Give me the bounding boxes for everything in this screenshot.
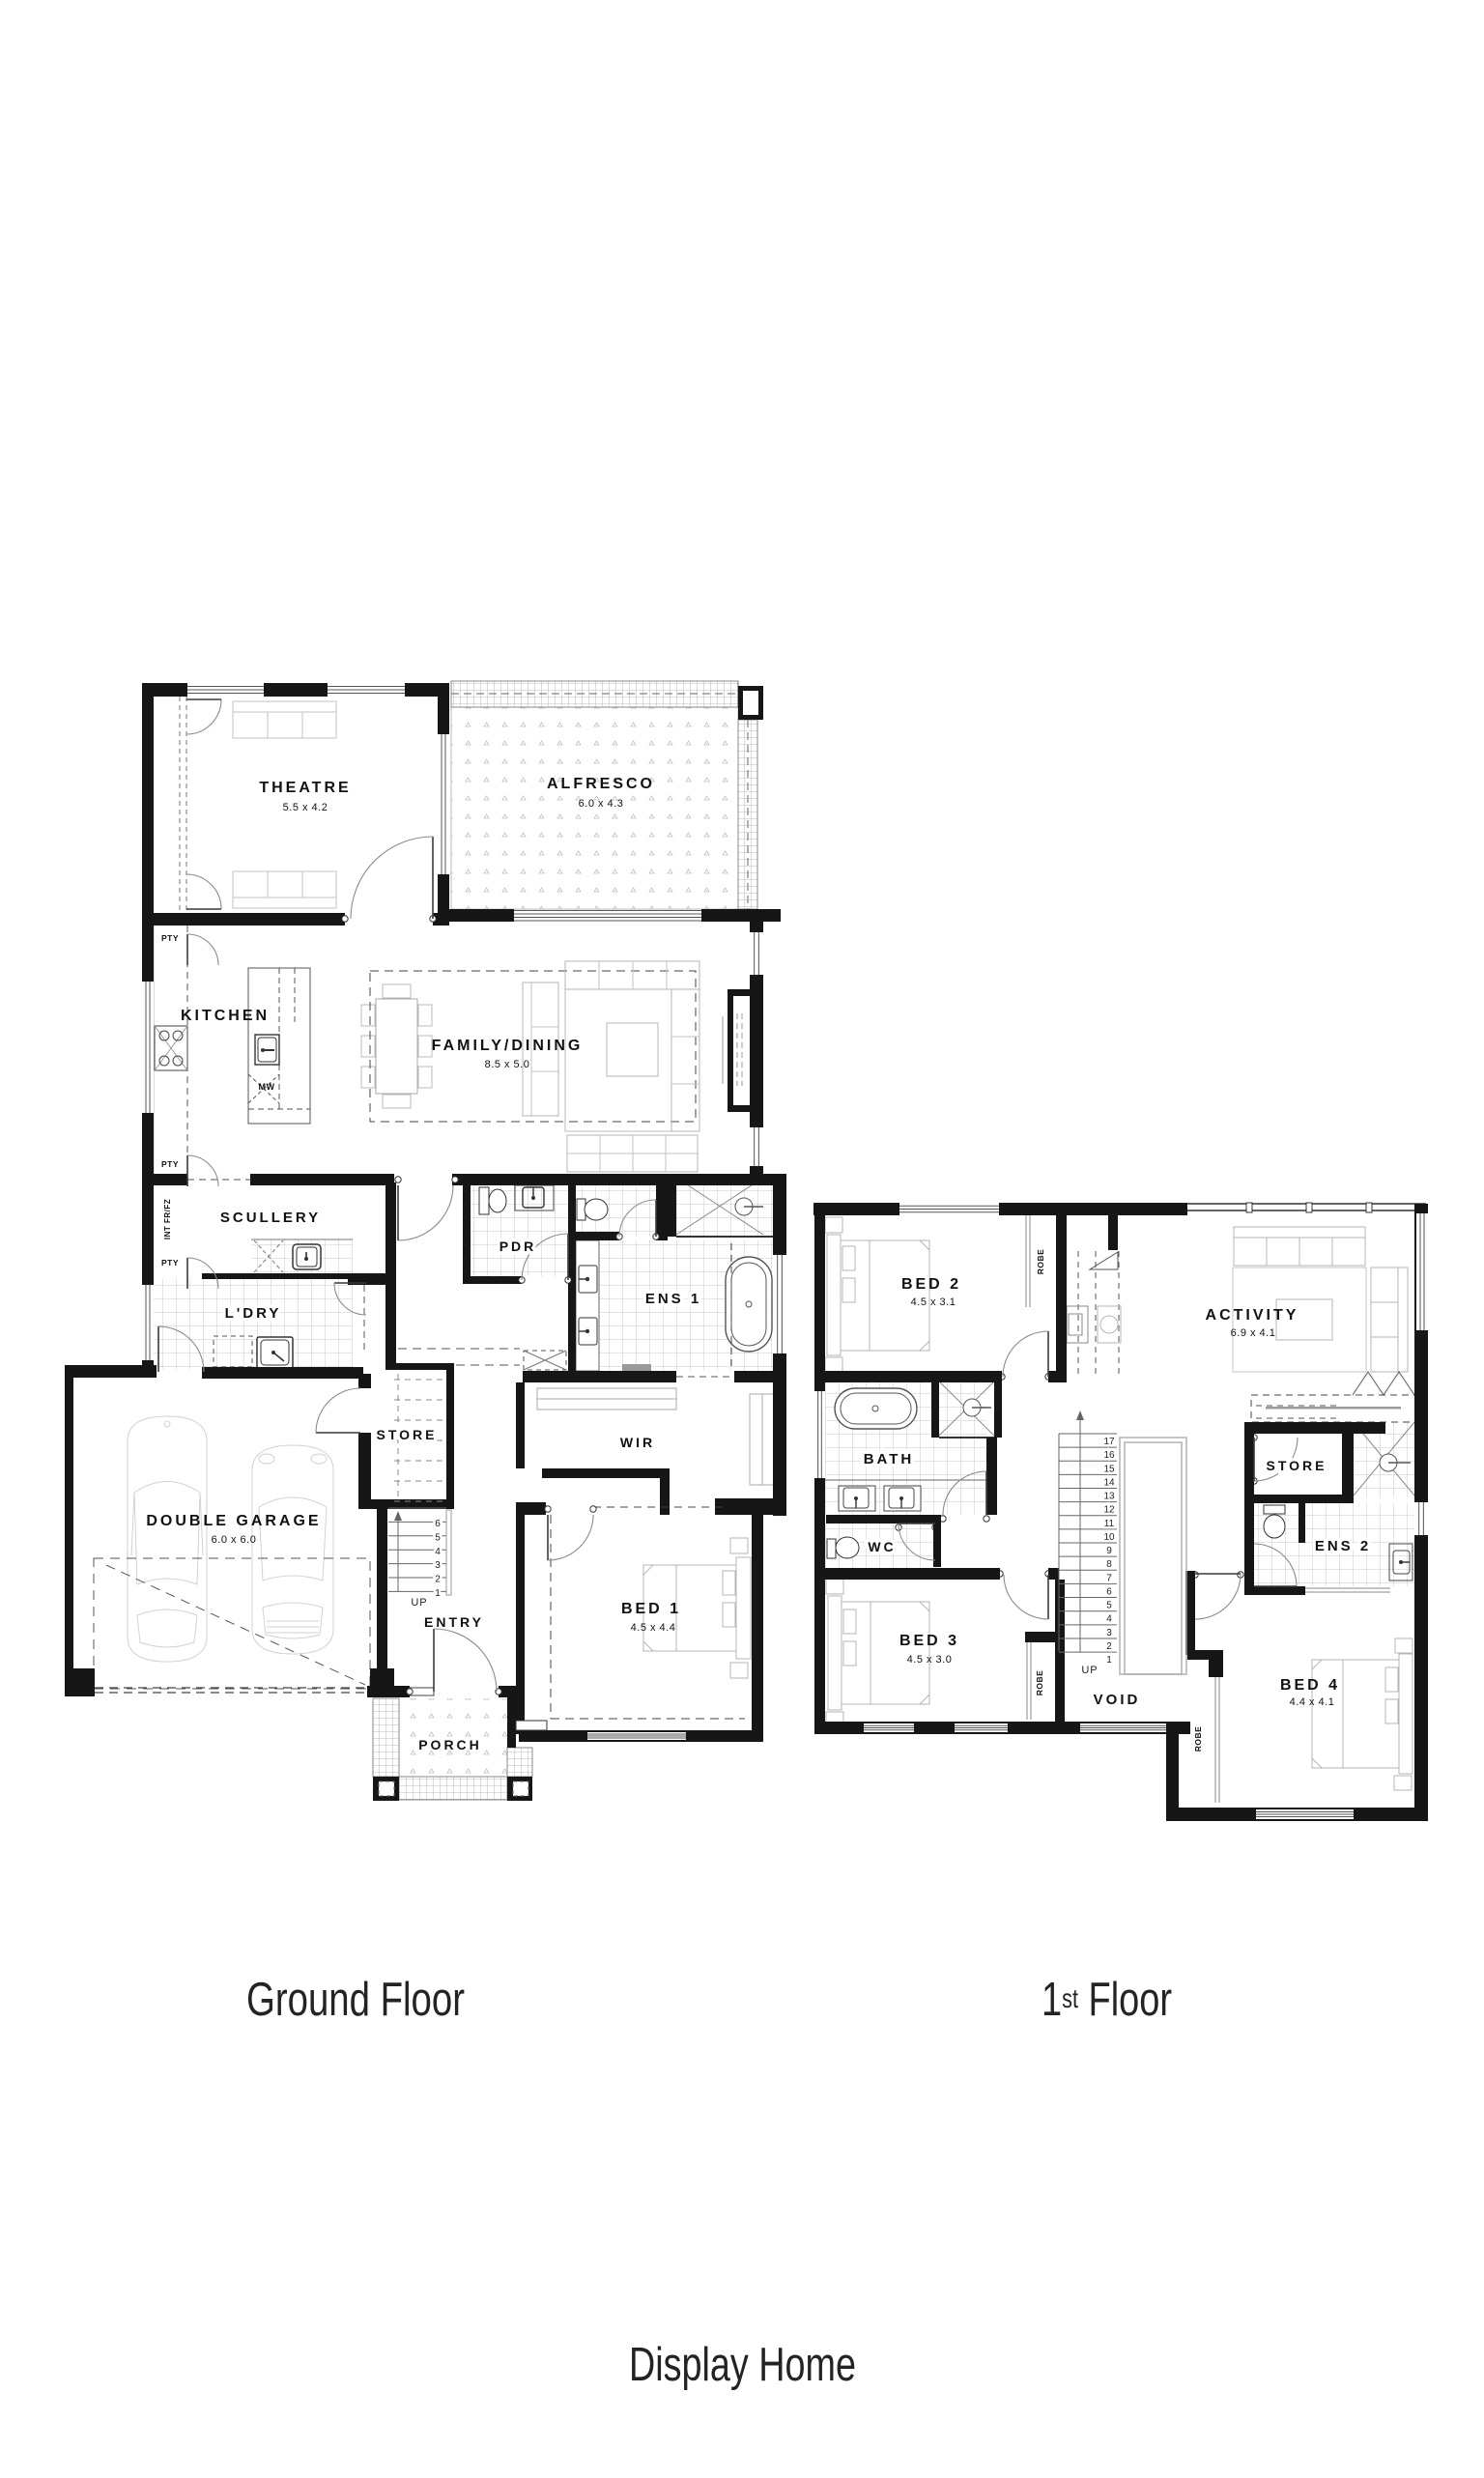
svg-text:MW: MW (259, 1082, 275, 1092)
svg-text:12: 12 (1103, 1505, 1115, 1516)
svg-text:1: 1 (435, 1588, 441, 1599)
svg-text:ALFRESCO: ALFRESCO (547, 776, 655, 792)
svg-text:14: 14 (1103, 1477, 1115, 1488)
svg-text:3: 3 (435, 1560, 441, 1571)
svg-text:ENS 2: ENS 2 (1315, 1538, 1371, 1554)
svg-text:4.4 x 4.1: 4.4 x 4.1 (1290, 1696, 1335, 1708)
svg-text:VOID: VOID (1094, 1692, 1141, 1708)
svg-text:PTY: PTY (161, 933, 179, 943)
svg-text:2: 2 (1106, 1641, 1112, 1652)
svg-text:BED 4: BED 4 (1280, 1677, 1340, 1694)
svg-text:15: 15 (1103, 1464, 1115, 1474)
svg-text:UP: UP (1081, 1665, 1098, 1676)
svg-text:6.0 x 4.3: 6.0 x 4.3 (579, 798, 624, 810)
svg-text:7: 7 (1106, 1573, 1112, 1583)
svg-text:5: 5 (1106, 1601, 1112, 1611)
svg-text:3: 3 (1106, 1628, 1112, 1638)
svg-text:4: 4 (1106, 1614, 1112, 1625)
svg-text:ROBE: ROBE (1036, 1249, 1045, 1275)
svg-text:5: 5 (435, 1532, 441, 1543)
svg-text:6.9 x 4.1: 6.9 x 4.1 (1231, 1327, 1276, 1339)
svg-text:STORE: STORE (377, 1427, 438, 1442)
svg-text:PDR: PDR (499, 1239, 537, 1254)
svg-text:1: 1 (1106, 1655, 1112, 1666)
svg-text:4.5 x 4.4: 4.5 x 4.4 (631, 1622, 676, 1634)
svg-text:1st Floor: 1st Floor (1042, 1974, 1172, 2026)
svg-text:6: 6 (435, 1519, 441, 1529)
svg-text:17: 17 (1103, 1437, 1115, 1447)
svg-text:SCULLERY: SCULLERY (220, 1210, 321, 1226)
svg-text:5.5 x 4.2: 5.5 x 4.2 (283, 802, 328, 813)
svg-text:PTY: PTY (161, 1258, 179, 1267)
svg-text:BED 1: BED 1 (621, 1601, 681, 1617)
svg-text:BATH: BATH (864, 1451, 915, 1467)
svg-text:Display Home: Display Home (629, 2339, 856, 2391)
svg-text:INT FR/FZ: INT FR/FZ (163, 1199, 172, 1239)
svg-text:8: 8 (1106, 1559, 1112, 1570)
svg-text:9: 9 (1106, 1546, 1112, 1556)
svg-text:10: 10 (1103, 1532, 1115, 1543)
svg-text:PTY: PTY (161, 1159, 179, 1169)
svg-text:4: 4 (435, 1547, 441, 1557)
svg-text:13: 13 (1103, 1492, 1115, 1502)
svg-text:WIR: WIR (620, 1435, 655, 1450)
svg-text:ENS 1: ENS 1 (645, 1291, 701, 1307)
svg-text:6.0 x 6.0: 6.0 x 6.0 (212, 1534, 257, 1546)
svg-text:FAMILY/DINING: FAMILY/DINING (432, 1038, 584, 1054)
svg-text:BED 2: BED 2 (901, 1276, 961, 1293)
svg-text:ROBE: ROBE (1035, 1670, 1044, 1696)
svg-text:Ground Floor: Ground Floor (246, 1974, 465, 2026)
svg-text:4.5 x 3.0: 4.5 x 3.0 (907, 1654, 953, 1666)
svg-text:L'DRY: L'DRY (225, 1305, 282, 1322)
svg-text:4.5 x 3.1: 4.5 x 3.1 (911, 1296, 956, 1308)
svg-text:16: 16 (1103, 1450, 1115, 1461)
svg-text:6: 6 (1106, 1586, 1112, 1597)
svg-text:8.5 x 5.0: 8.5 x 5.0 (485, 1059, 530, 1070)
svg-text:11: 11 (1104, 1519, 1115, 1529)
svg-text:THEATRE: THEATRE (259, 780, 351, 796)
svg-text:ACTIVITY: ACTIVITY (1206, 1307, 1299, 1324)
svg-text:KITCHEN: KITCHEN (181, 1008, 270, 1024)
svg-text:2: 2 (435, 1575, 441, 1585)
svg-text:PORCH: PORCH (418, 1737, 482, 1752)
svg-text:ENTRY: ENTRY (424, 1614, 484, 1630)
svg-text:STORE: STORE (1267, 1458, 1327, 1473)
svg-text:UP: UP (411, 1597, 427, 1609)
svg-text:WC: WC (868, 1539, 896, 1554)
svg-text:ROBE: ROBE (1193, 1726, 1203, 1752)
svg-text:DOUBLE GARAGE: DOUBLE GARAGE (146, 1513, 321, 1529)
svg-text:BED 3: BED 3 (899, 1633, 959, 1649)
